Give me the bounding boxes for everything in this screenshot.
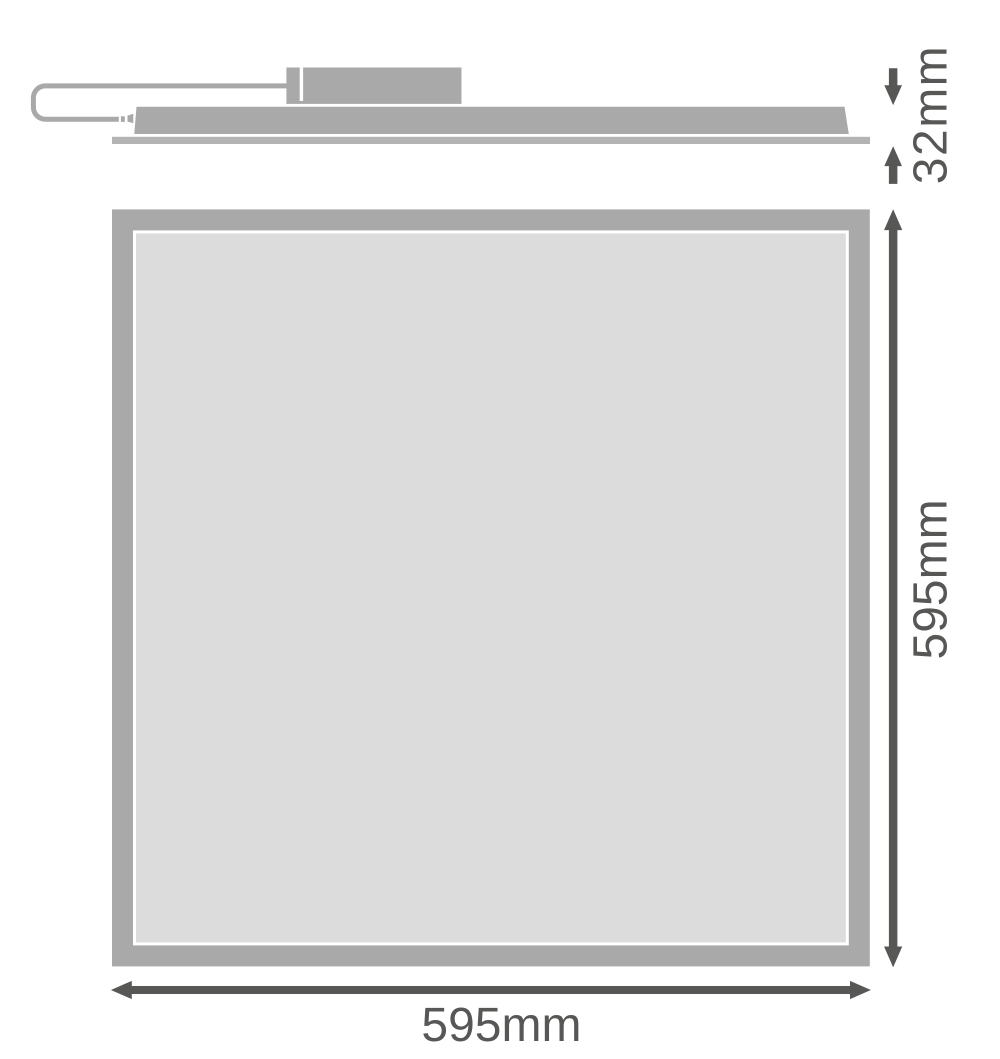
svg-text:32mm: 32mm	[904, 45, 957, 184]
svg-text:595mm: 595mm	[904, 499, 957, 659]
svg-text:595mm: 595mm	[421, 999, 581, 1052]
